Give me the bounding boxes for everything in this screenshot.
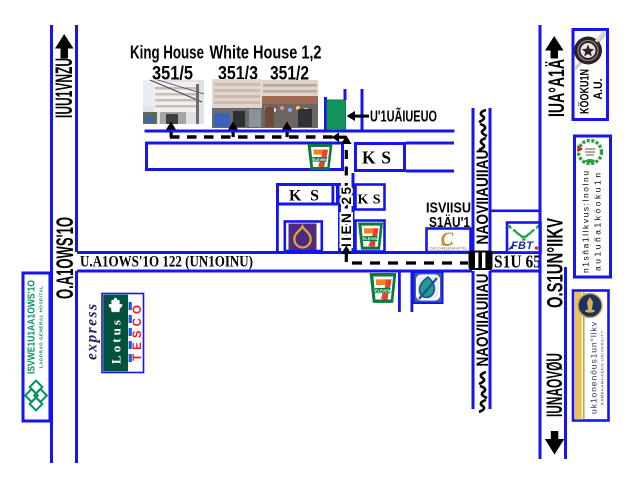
- svg-text:NAOVIIAUIIAU: NAOVIIAUIIAU: [473, 150, 492, 245]
- svg-text:O.S1UN°IIKV: O.S1UN°IIKV: [543, 218, 568, 308]
- svg-text:THE CHALEENA HOTEL: THE CHALEENA HOTEL: [430, 247, 468, 251]
- svg-text:KÖOKU1N: KÖOKU1N: [577, 69, 592, 114]
- svg-text:IUA°A1Ä: IUA°A1Ä: [544, 59, 569, 117]
- svg-text:LADPRAO GENERAL HOSPITAL: LADPRAO GENERAL HOSPITAL: [39, 286, 44, 368]
- svg-text:express: express: [84, 304, 101, 360]
- svg-text:White House 1,2: White House 1,2: [210, 43, 322, 63]
- svg-text:U'1UÃIUEUO: U'1UÃIUEUO: [370, 106, 437, 126]
- svg-text:O.A1OWS'1O: O.A1OWS'1O: [52, 217, 79, 299]
- svg-text:U.A1OWS'1O 122 (UN1OINU): U.A1OWS'1O 122 (UN1OINU): [80, 254, 253, 271]
- svg-text:K S: K S: [358, 193, 381, 208]
- svg-text:IUU1VNZU: IUU1VNZU: [51, 58, 78, 118]
- svg-text:King House: King House: [130, 43, 204, 63]
- svg-text:uk1onenőus1un°llkv: uk1onenőus1un°llkv: [589, 321, 599, 414]
- svg-text:S1U 65: S1U 65: [494, 252, 541, 272]
- svg-text:ISVWE1U1AA1OWS'1O: ISVWE1U1AA1OWS'1O: [26, 280, 38, 374]
- svg-text:RAMKHAMHAENG UNIVERSITY: RAMKHAMHAENG UNIVERSITY: [601, 331, 605, 405]
- svg-text:A.U.: A.U.: [591, 79, 605, 100]
- svg-text:K S: K S: [289, 188, 319, 205]
- svg-text:n1sña1llkvus:lnolnu: n1sña1llkvus:lnolnu: [581, 171, 591, 273]
- svg-text:NAOVIIAUIIAU: NAOVIIAUIIAU: [473, 274, 492, 367]
- svg-text:FBT: FBT: [511, 240, 534, 252]
- svg-text:IUNAOVØU: IUNAOVØU: [542, 353, 567, 417]
- svg-text:K S: K S: [362, 148, 391, 168]
